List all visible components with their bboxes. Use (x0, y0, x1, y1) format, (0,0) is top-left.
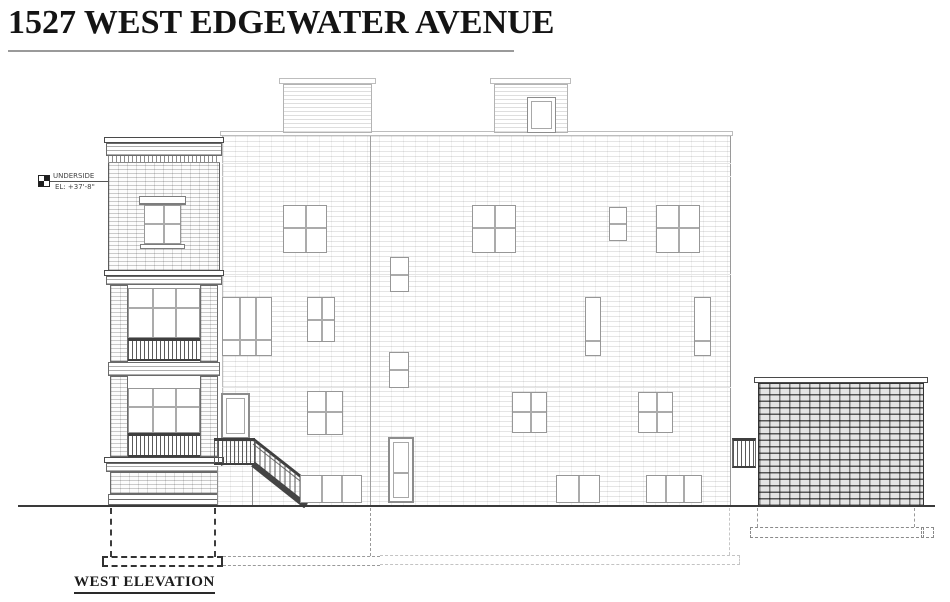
stair-landing-base (217, 466, 253, 507)
window-4pane (307, 391, 343, 435)
tower-cornice (106, 143, 222, 156)
brick-course-line (222, 176, 731, 177)
building-foundation (223, 556, 380, 566)
tower-base-cornice (106, 463, 222, 472)
foundation-line (370, 508, 371, 556)
window-4pane (512, 392, 547, 433)
garage-foundation-line (757, 508, 758, 527)
garage-foundation (750, 527, 924, 538)
window-4pane (472, 205, 516, 253)
tower-pillar (110, 376, 128, 457)
foundation-line (214, 508, 216, 557)
stairwell-window (390, 257, 409, 292)
window-tall-narrow (694, 297, 711, 356)
foundation-line (110, 508, 112, 557)
drawing-sheet: 1527 WEST EDGEWATER AVENUE (0, 0, 950, 602)
building-foundation (380, 555, 740, 565)
underside-label: UNDERSIDE (53, 172, 94, 180)
side-fence (732, 438, 756, 468)
window-tall-narrow (585, 297, 601, 356)
stairwell-window (389, 352, 409, 388)
window-4pane (283, 205, 327, 253)
brick-course-line (222, 163, 731, 164)
foundation-line (729, 508, 730, 555)
garage-wall (758, 383, 924, 507)
elevation-marker-icon (38, 175, 50, 187)
tower-dentil-band (108, 156, 220, 163)
rear-entry-door (388, 437, 414, 503)
window-4pane (307, 297, 335, 342)
window-triple (222, 297, 272, 356)
basement-window-double (556, 475, 600, 503)
tower-foundation (102, 556, 223, 567)
porch-window-lower (128, 388, 200, 433)
porch-window-upper (128, 288, 200, 338)
tower-window-crown (139, 196, 186, 205)
tower-pillar (200, 285, 218, 362)
tower-mid-cornice (106, 276, 222, 285)
basement-window-triple (300, 475, 362, 503)
tower-floor-band (108, 362, 220, 376)
penthouse-left (283, 84, 372, 133)
elevation-title: WEST ELEVATION (74, 574, 215, 594)
garage-foundation-pad (921, 527, 934, 538)
tower-pillar (110, 285, 128, 362)
penthouse-door (527, 97, 556, 133)
tower-window-sill (140, 244, 185, 249)
window-4pane (656, 205, 700, 253)
page-title: 1527 WEST EDGEWATER AVENUE (8, 4, 554, 42)
leader-line (50, 181, 108, 182)
balcony-railing-upper (128, 338, 200, 361)
stair-landing-railing (214, 438, 255, 465)
basement-window-triple (646, 475, 702, 503)
tower-plinth (108, 494, 220, 505)
foundation-line (739, 555, 740, 565)
ground-line (18, 505, 935, 507)
entry-door-upper (221, 393, 250, 439)
window-4pane (638, 392, 673, 433)
title-underline (8, 50, 514, 52)
garage-foundation-line (914, 508, 915, 527)
underside-elevation-value: EL: +37'-8" (55, 183, 95, 191)
tower-pedestal (110, 472, 218, 494)
tower-window (144, 205, 181, 244)
brick-course-line (222, 387, 731, 388)
balcony-railing-lower (128, 433, 200, 457)
window-small (609, 207, 627, 241)
brick-course-line (222, 274, 731, 275)
wall-plane-edge (370, 136, 371, 507)
